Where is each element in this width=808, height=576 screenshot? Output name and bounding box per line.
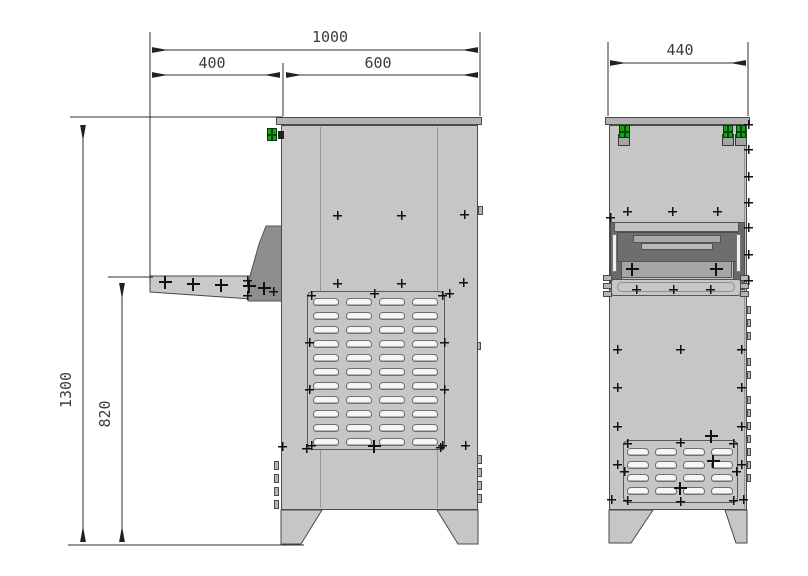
louver-slot <box>379 326 405 334</box>
dimension-label-total-height: 1300 <box>57 372 75 408</box>
louver-slot <box>346 354 372 362</box>
screw-cross-icon <box>623 207 632 216</box>
louver-slot <box>313 298 339 306</box>
bolt-bump <box>603 283 612 289</box>
louver-slot <box>412 312 438 320</box>
mouth-left-rail <box>612 234 617 272</box>
screw-cross-icon <box>744 145 753 154</box>
screw-cross-icon <box>333 211 342 220</box>
front-view-right-leg <box>725 510 747 543</box>
louver-slot <box>346 298 372 306</box>
screw-cross-large-icon <box>243 280 256 293</box>
green-knob-icon <box>723 125 733 138</box>
screw-cross-icon <box>632 285 641 294</box>
louver-slot <box>412 382 438 390</box>
louver-slot <box>346 340 372 348</box>
screw-cross-icon <box>713 207 722 216</box>
louver-slot <box>683 448 705 456</box>
bolt-bump <box>747 332 751 340</box>
bolt-bump <box>477 494 482 503</box>
screw-cross-icon <box>305 385 314 394</box>
green-switch-icon <box>267 128 277 141</box>
screw-cross-icon <box>436 443 445 452</box>
louver-slot <box>313 438 339 446</box>
bolt-bump <box>274 461 279 470</box>
louver-slot <box>313 396 339 404</box>
side-vent-panel <box>307 291 445 450</box>
bolt-bump <box>274 487 279 496</box>
screw-cross-icon <box>459 278 468 287</box>
mouth-die-plate-lower <box>641 243 713 250</box>
louver-slot <box>412 438 438 446</box>
screw-cross-large-icon <box>258 282 271 295</box>
bolt-bump <box>747 358 751 366</box>
louver-slot <box>379 396 405 404</box>
screw-cross-icon <box>729 496 738 505</box>
screw-cross-large-icon <box>215 279 228 292</box>
screw-cross-icon <box>620 467 629 476</box>
screw-cross-icon <box>676 497 685 506</box>
louver-slot <box>379 354 405 362</box>
screw-cross-icon <box>333 279 342 288</box>
dimension-label-body-depth: 600 <box>364 54 391 72</box>
bolt-bump <box>747 474 751 482</box>
screw-cross-icon <box>607 495 616 504</box>
bolt-bump <box>747 319 751 327</box>
louver-slot <box>379 298 405 306</box>
bolt-bump <box>274 500 279 509</box>
screw-cross-large-icon <box>710 263 723 276</box>
louver-slot <box>683 461 705 469</box>
bolt-bump <box>747 409 751 417</box>
side-view-top-cap <box>276 117 482 125</box>
louver-slot <box>313 382 339 390</box>
screw-cross-large-icon <box>159 276 172 289</box>
screw-cross-icon <box>676 345 685 354</box>
side-view-right-leg <box>437 510 478 544</box>
bolt-bump <box>477 468 482 477</box>
louver-slot <box>412 326 438 334</box>
louver-slot <box>313 354 339 362</box>
louver-slot <box>346 382 372 390</box>
louver-slot <box>313 424 339 432</box>
screw-cross-icon <box>744 276 753 285</box>
louver-slot <box>379 368 405 376</box>
screw-cross-icon <box>613 345 622 354</box>
louver-slot <box>412 424 438 432</box>
louver-slot <box>379 312 405 320</box>
louver-slot <box>313 368 339 376</box>
screw-cross-icon <box>278 442 287 451</box>
louver-slot <box>627 448 649 456</box>
louver-slot <box>412 368 438 376</box>
dimension-label-front-width: 440 <box>666 41 693 59</box>
louver-slot <box>346 312 372 320</box>
screw-cross-large-icon <box>705 430 718 443</box>
bolt-bump <box>747 306 751 314</box>
side-view-left-leg <box>281 510 322 544</box>
screw-cross-icon <box>613 383 622 392</box>
louver-slot <box>412 396 438 404</box>
bolt-bump <box>747 371 751 379</box>
louver-slot <box>379 382 405 390</box>
screw-cross-icon <box>737 345 746 354</box>
louver-slot <box>346 396 372 404</box>
screw-cross-icon <box>302 444 311 453</box>
screw-cross-icon <box>460 210 469 219</box>
louver-slot <box>313 410 339 418</box>
bolt-bump <box>740 291 749 297</box>
mouth-top-bar <box>614 222 739 232</box>
bolt-bump <box>603 275 612 281</box>
dimension-label-shelf-height: 820 <box>96 400 114 427</box>
louver-slot <box>627 461 649 469</box>
screw-cross-icon <box>606 213 615 222</box>
mouth-right-rail <box>736 234 741 272</box>
screw-cross-icon <box>737 422 746 431</box>
screw-cross-icon <box>676 438 685 447</box>
screw-cross-icon <box>706 285 715 294</box>
bolt-bump <box>478 206 483 215</box>
louver-slot <box>711 474 733 482</box>
screw-cross-icon <box>623 439 632 448</box>
louver-slot <box>346 410 372 418</box>
screw-cross-icon <box>440 385 449 394</box>
front-view-top-cap <box>605 117 750 125</box>
screw-cross-icon <box>744 223 753 232</box>
louver-slot <box>346 424 372 432</box>
screw-cross-icon <box>668 207 677 216</box>
screw-cross-large-icon <box>674 482 687 495</box>
louver-slot <box>627 474 649 482</box>
louver-slot <box>412 354 438 362</box>
bolt-bump <box>747 396 751 404</box>
switch-base <box>278 131 284 139</box>
screw-cross-icon <box>397 211 406 220</box>
louver-slot <box>655 461 677 469</box>
screw-cross-icon <box>307 291 316 300</box>
screw-cross-icon <box>305 338 314 347</box>
screw-cross-icon <box>732 467 741 476</box>
screw-cross-icon <box>737 383 746 392</box>
dimension-label-total-width: 1000 <box>312 28 348 46</box>
screw-cross-icon <box>669 285 678 294</box>
screw-cross-icon <box>744 172 753 181</box>
louver-slot <box>379 340 405 348</box>
screw-cross-icon <box>744 120 753 129</box>
technical-drawing: 1000 400 600 440 1300 820 const data = J… <box>0 0 808 576</box>
louver-slot <box>627 487 649 495</box>
bolt-bump <box>747 435 751 443</box>
louver-slot <box>655 448 677 456</box>
screw-cross-large-icon <box>707 455 720 468</box>
screw-cross-icon <box>440 338 449 347</box>
screw-cross-icon <box>623 496 632 505</box>
screw-cross-icon <box>370 289 379 298</box>
screw-cross-icon <box>397 279 406 288</box>
bolt-bump <box>274 474 279 483</box>
louver-slot <box>683 474 705 482</box>
dimension-label-shelf-depth: 400 <box>198 54 225 72</box>
screw-cross-icon <box>744 250 753 259</box>
screw-cross-icon <box>744 198 753 207</box>
mouth-die-plate-upper <box>633 235 721 243</box>
screw-cross-large-icon <box>368 440 381 453</box>
louver-slot <box>412 340 438 348</box>
bolt-bump <box>477 342 481 350</box>
louver-slot <box>313 340 339 348</box>
louver-slot <box>379 410 405 418</box>
louver-slot <box>313 312 339 320</box>
louver-slot <box>655 474 677 482</box>
bolt-bump <box>747 461 751 469</box>
louver-slot <box>346 326 372 334</box>
bolt-bump <box>477 481 482 490</box>
green-knob-icon <box>619 125 630 138</box>
screw-cross-icon <box>739 495 748 504</box>
louver-slot <box>379 424 405 432</box>
louver-slot <box>313 326 339 334</box>
front-view-panel-seam <box>744 127 745 508</box>
screw-cross-icon <box>461 441 470 450</box>
screw-cross-icon <box>445 289 454 298</box>
louver-slot <box>346 368 372 376</box>
louver-slot <box>711 487 733 495</box>
front-view-left-leg <box>609 510 653 543</box>
screw-cross-icon <box>729 439 738 448</box>
screw-cross-large-icon <box>187 278 200 291</box>
louver-slot <box>379 438 405 446</box>
screw-cross-icon <box>613 422 622 431</box>
bolt-bump <box>603 291 612 297</box>
bolt-bump <box>747 448 751 456</box>
louver-slot <box>412 410 438 418</box>
louver-slot <box>412 298 438 306</box>
bolt-bump <box>477 455 482 464</box>
screw-cross-large-icon <box>626 263 639 276</box>
bolt-bump <box>747 422 751 430</box>
